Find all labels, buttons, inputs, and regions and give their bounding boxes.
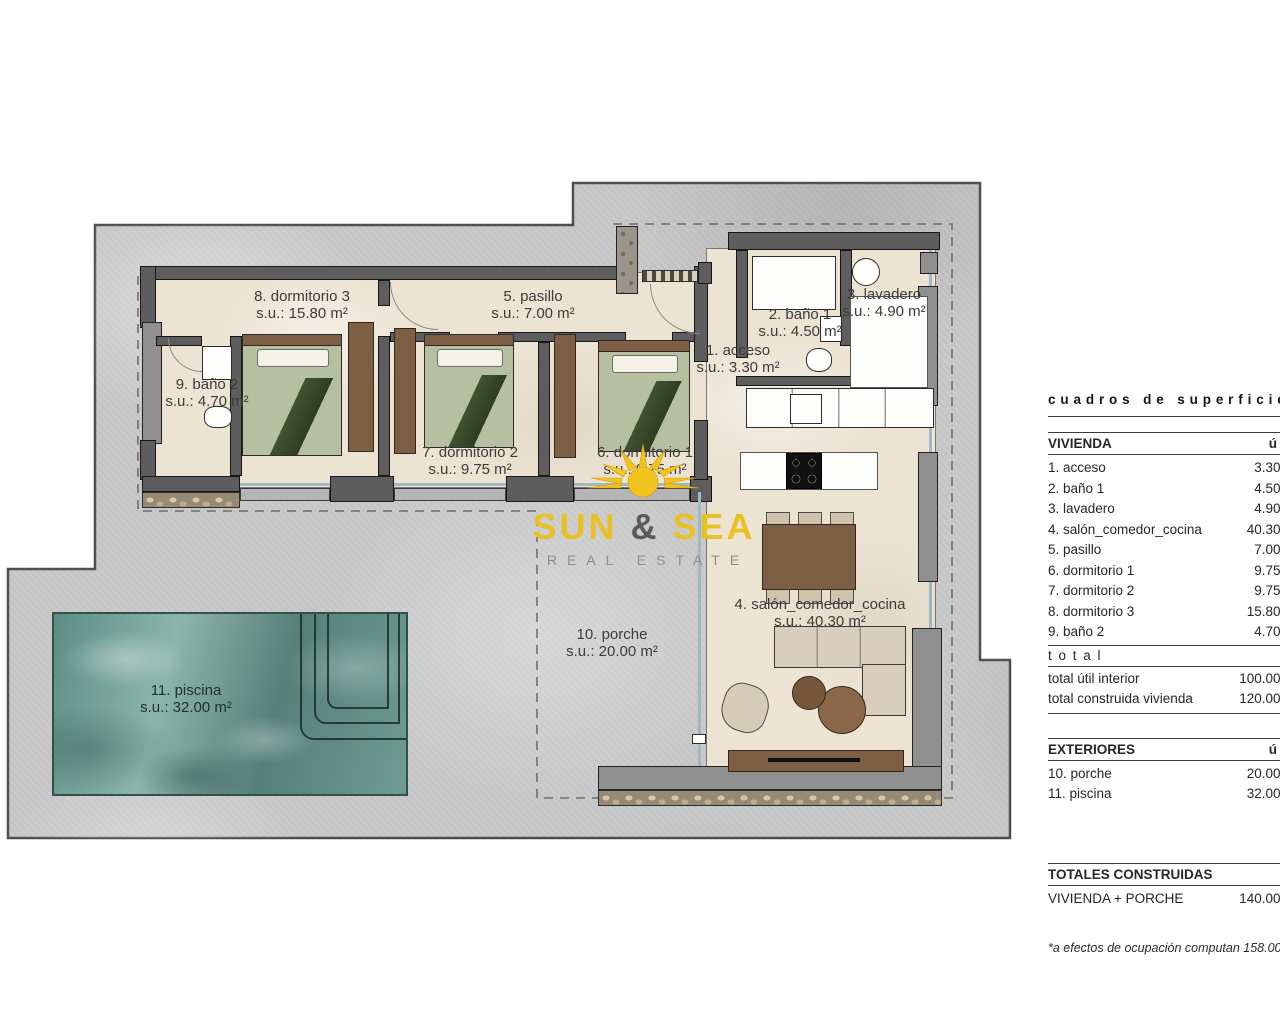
room-area: s.u.: 7.00 m²	[491, 305, 574, 322]
cooktop-icon	[786, 453, 822, 489]
washer-icon	[852, 258, 880, 286]
room-area: s.u.: 9.75 m²	[422, 461, 518, 478]
wardrobe-icon	[348, 322, 374, 452]
table-row: 9. baño 24.70 m²	[1048, 622, 1280, 643]
wall	[378, 280, 390, 306]
footnote: *a efectos de ocupación computan 158.00 …	[1048, 941, 1280, 955]
section-header: TOTALES CONSTRUIDAS	[1048, 864, 1213, 885]
room-name: 11. piscina	[140, 682, 232, 699]
blanket	[242, 378, 342, 456]
kitchen-sink-icon	[790, 394, 822, 424]
wall	[728, 232, 940, 250]
room-name: 3. lavadero	[842, 286, 925, 303]
table-row: 7. dormitorio 29.75 m²	[1048, 581, 1280, 602]
headboard	[599, 341, 689, 352]
sofa-chaise-icon	[862, 664, 906, 716]
headboard	[243, 335, 341, 346]
pillow	[257, 349, 330, 367]
exteriores-header-row: EXTERIORES útil	[1048, 738, 1280, 761]
wall	[330, 476, 394, 502]
section-header: VIVIENDA	[1048, 433, 1112, 454]
room-area: s.u.: 3.30 m²	[696, 359, 779, 376]
sun-logo-icon	[580, 442, 706, 508]
wall	[378, 336, 390, 476]
sofa-icon	[774, 626, 906, 668]
shower-icon	[752, 256, 836, 310]
room-name: 7. dormitorio 2	[422, 444, 518, 461]
table-row: total construida vivienda120.00 m²	[1048, 689, 1280, 710]
section-header: EXTERIORES	[1048, 739, 1135, 760]
toilet-icon	[806, 348, 832, 372]
door-handle	[692, 734, 706, 744]
blanket	[424, 375, 514, 448]
room-area: s.u.: 4.90 m²	[842, 303, 925, 320]
kitchen-counter	[746, 388, 934, 428]
brand-ampersand: &	[630, 506, 659, 547]
tv-icon	[768, 758, 860, 762]
table-row: 6. dormitorio 19.75 m²	[1048, 561, 1280, 582]
brand-word-sun: SUN	[532, 506, 617, 547]
room-area: s.u.: 20.00 m²	[566, 643, 658, 660]
divider	[1048, 713, 1280, 714]
pillow	[437, 349, 502, 367]
wall	[736, 376, 856, 386]
room-label-dormitorio-2: 7. dormitorio 2 s.u.: 9.75 m²	[422, 444, 518, 478]
brand-word-sea: SEA	[673, 506, 756, 547]
room-area: s.u.: 4.50 m²	[758, 323, 841, 340]
window-sill	[394, 488, 506, 501]
paving-strip	[142, 492, 240, 508]
table-row: 1. acceso3.30 m²	[1048, 458, 1280, 479]
bed-icon	[242, 334, 342, 456]
wall	[506, 476, 574, 502]
room-label-bano-2: 9. baño 2 s.u.: 4.70 m²	[165, 376, 248, 410]
room-name: 8. dormitorio 3	[254, 288, 350, 305]
brand-wordmark: SUN & SEA	[532, 506, 755, 548]
sink-icon	[202, 346, 232, 380]
surface-table: cuadros de superficie VIVIENDA útil 1. a…	[1048, 392, 1280, 955]
wall	[538, 342, 550, 476]
column-header-util: útil	[1236, 433, 1280, 454]
room-name: 1. acceso	[696, 342, 779, 359]
bed-icon	[424, 334, 514, 448]
room-label-lavadero: 3. lavadero s.u.: 4.90 m²	[842, 286, 925, 320]
wall	[140, 266, 620, 280]
floor-plan-page: { "plan": { "rooms": [ {"label": "8. dor…	[0, 0, 1280, 1024]
table-row: 10. porche20.00 m²	[1048, 764, 1280, 785]
room-label-acceso: 1. acceso s.u.: 3.30 m²	[696, 342, 779, 376]
room-name: 10. porche	[566, 626, 658, 643]
table-row: 5. pasillo7.00 m²	[1048, 540, 1280, 561]
room-name: 4. salón_comedor_cocina	[735, 596, 906, 613]
bed-icon	[598, 340, 690, 452]
room-area: s.u.: 15.80 m²	[254, 305, 350, 322]
vivienda-header-row: VIVIENDA útil	[1048, 432, 1280, 455]
wardrobe-icon	[554, 334, 576, 458]
table-row: 2. baño 14.50 m²	[1048, 479, 1280, 500]
table-row: total útil interior100.00 m²	[1048, 669, 1280, 690]
room-name: 5. pasillo	[491, 288, 574, 305]
totales-header-row: TOTALES CONSTRUIDAS	[1048, 863, 1280, 886]
room-label-bano-1: 2. baño 1 s.u.: 4.50 m²	[758, 306, 841, 340]
room-area: s.u.: 32.00 m²	[140, 699, 232, 716]
table-row: 3. lavadero4.90 m²	[1048, 499, 1280, 520]
room-label-porche: 10. porche s.u.: 20.00 m²	[566, 626, 658, 660]
room-area: s.u.: 40.30 m²	[735, 613, 906, 630]
room-label-piscina: 11. piscina s.u.: 32.00 m²	[140, 682, 232, 716]
total-label-row: total	[1048, 645, 1280, 667]
facade-pillar	[920, 252, 938, 274]
side-table-icon	[792, 676, 826, 710]
brand-tagline: REAL ESTATE	[547, 552, 749, 568]
room-name: 9. baño 2	[165, 376, 248, 393]
window-sill	[240, 488, 330, 501]
paving-strip	[598, 790, 942, 806]
pillow	[612, 355, 679, 373]
headboard	[425, 335, 513, 346]
table-row: 4. salón_comedor_cocina40.30 m²	[1048, 520, 1280, 541]
table-row: VIVIENDA + PORCHE140.00 m²	[1048, 889, 1280, 910]
window	[394, 483, 506, 486]
room-name: 2. baño 1	[758, 306, 841, 323]
facade-pillar	[918, 452, 938, 582]
room-area: s.u.: 4.70 m²	[165, 393, 248, 410]
corner-wall	[912, 628, 942, 778]
wall	[140, 266, 156, 328]
wall	[140, 440, 156, 480]
wall	[698, 262, 712, 284]
room-label-dormitorio-3: 8. dormitorio 3 s.u.: 15.80 m²	[254, 288, 350, 322]
entry-grate	[642, 270, 698, 282]
wall	[142, 476, 240, 492]
table-row: 8. dormitorio 315.80 m²	[1048, 602, 1280, 623]
table-title: cuadros de superficie	[1048, 392, 1280, 407]
room-label-pasillo: 5. pasillo s.u.: 7.00 m²	[491, 288, 574, 322]
table-row: 11. piscina32.00 m²	[1048, 784, 1280, 805]
divider	[1048, 416, 1280, 417]
pool-steps-icon	[327, 612, 389, 709]
wardrobe-icon	[394, 328, 416, 454]
dining-table-icon	[762, 524, 856, 590]
entry-stone-column	[616, 226, 638, 294]
room-label-salon: 4. salón_comedor_cocina s.u.: 40.30 m²	[735, 596, 906, 630]
window	[240, 483, 330, 486]
column-header-util: útil	[1236, 739, 1280, 760]
